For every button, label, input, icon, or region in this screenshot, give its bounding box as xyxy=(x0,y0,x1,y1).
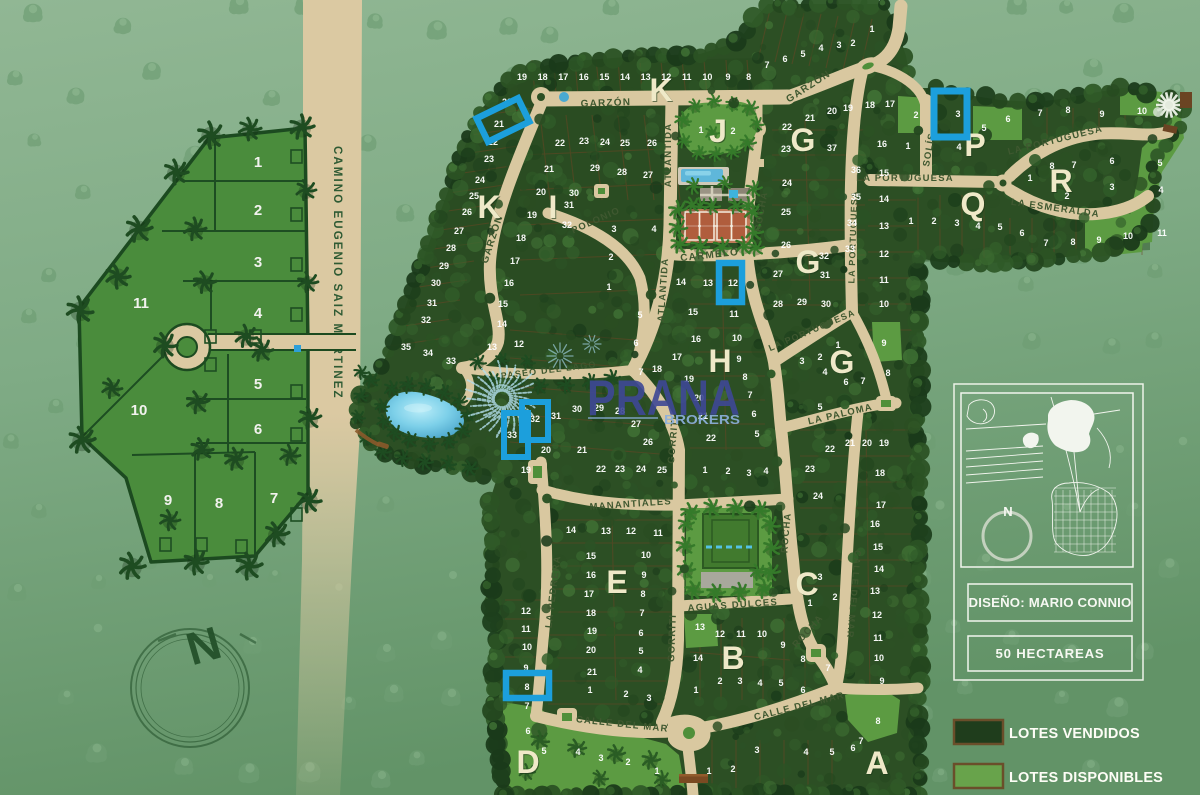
svg-text:32: 32 xyxy=(421,315,431,325)
svg-text:24: 24 xyxy=(475,175,485,185)
svg-text:14: 14 xyxy=(676,277,686,287)
svg-text:24: 24 xyxy=(813,491,823,501)
svg-text:4: 4 xyxy=(757,678,762,688)
svg-text:17: 17 xyxy=(510,256,520,266)
svg-text:9: 9 xyxy=(1099,109,1104,119)
svg-text:20: 20 xyxy=(827,106,837,116)
svg-text:3: 3 xyxy=(254,254,262,271)
svg-text:21: 21 xyxy=(577,445,587,455)
svg-text:5: 5 xyxy=(829,747,834,757)
svg-text:17: 17 xyxy=(584,589,594,599)
svg-text:8: 8 xyxy=(640,589,645,599)
svg-text:15: 15 xyxy=(688,307,698,317)
svg-text:7: 7 xyxy=(524,701,529,711)
svg-text:19: 19 xyxy=(527,210,537,220)
svg-text:8: 8 xyxy=(1070,237,1075,247)
svg-text:10: 10 xyxy=(874,653,884,663)
svg-text:34: 34 xyxy=(423,348,433,358)
svg-text:17: 17 xyxy=(876,500,886,510)
svg-text:19: 19 xyxy=(587,626,597,636)
svg-text:E: E xyxy=(606,564,627,600)
svg-text:28: 28 xyxy=(773,299,783,309)
svg-text:26: 26 xyxy=(781,240,791,250)
svg-text:3: 3 xyxy=(746,468,751,478)
svg-text:N: N xyxy=(1003,504,1012,519)
svg-text:22: 22 xyxy=(782,122,792,132)
svg-text:31: 31 xyxy=(820,270,830,280)
svg-text:6: 6 xyxy=(254,421,262,438)
svg-text:J: J xyxy=(709,113,727,149)
svg-text:Q: Q xyxy=(961,186,986,222)
svg-text:20: 20 xyxy=(862,438,872,448)
svg-text:4: 4 xyxy=(254,305,263,322)
svg-text:31: 31 xyxy=(564,200,574,210)
svg-text:8: 8 xyxy=(524,682,529,692)
svg-text:12: 12 xyxy=(728,278,738,288)
svg-text:6: 6 xyxy=(1109,156,1114,166)
svg-text:10: 10 xyxy=(641,550,651,560)
svg-text:5: 5 xyxy=(1157,158,1162,168)
svg-text:23: 23 xyxy=(805,464,815,474)
svg-text:K: K xyxy=(477,189,500,225)
svg-text:6: 6 xyxy=(850,743,855,753)
svg-text:B: B xyxy=(721,640,744,676)
svg-text:3: 3 xyxy=(646,693,651,703)
svg-text:2: 2 xyxy=(623,689,628,699)
svg-text:26: 26 xyxy=(462,207,472,217)
svg-text:12: 12 xyxy=(715,629,725,639)
svg-text:15: 15 xyxy=(879,168,889,178)
svg-text:1: 1 xyxy=(654,766,659,776)
svg-text:15: 15 xyxy=(498,299,508,309)
svg-text:7: 7 xyxy=(764,60,769,70)
svg-text:9: 9 xyxy=(780,640,785,650)
svg-text:36: 36 xyxy=(851,165,861,175)
svg-text:32: 32 xyxy=(562,220,572,230)
svg-text:I: I xyxy=(549,189,558,225)
svg-text:19: 19 xyxy=(521,465,531,475)
svg-text:7: 7 xyxy=(1071,160,1076,170)
svg-text:22: 22 xyxy=(825,444,835,454)
svg-text:3: 3 xyxy=(754,745,759,755)
svg-text:12: 12 xyxy=(626,526,636,536)
svg-text:24: 24 xyxy=(782,178,792,188)
svg-text:10: 10 xyxy=(131,402,148,419)
svg-text:13: 13 xyxy=(695,622,705,632)
svg-text:12: 12 xyxy=(521,606,531,616)
svg-text:25: 25 xyxy=(469,191,479,201)
svg-text:27: 27 xyxy=(454,226,464,236)
svg-text:32: 32 xyxy=(819,251,829,261)
svg-text:20: 20 xyxy=(536,187,546,197)
svg-text:7: 7 xyxy=(858,736,863,746)
svg-text:6: 6 xyxy=(1019,228,1024,238)
svg-text:30: 30 xyxy=(431,278,441,288)
svg-text:13: 13 xyxy=(870,586,880,596)
svg-text:7: 7 xyxy=(747,390,752,400)
svg-text:5: 5 xyxy=(254,376,262,393)
svg-text:17: 17 xyxy=(885,99,895,109)
svg-text:30: 30 xyxy=(572,404,582,414)
svg-text:3: 3 xyxy=(836,40,841,50)
svg-text:29: 29 xyxy=(797,297,807,307)
svg-text:11: 11 xyxy=(736,629,746,639)
svg-text:8: 8 xyxy=(1065,105,1070,115)
svg-text:18: 18 xyxy=(875,468,885,478)
svg-text:22: 22 xyxy=(596,464,606,474)
svg-text:21: 21 xyxy=(587,667,597,677)
svg-text:21: 21 xyxy=(544,164,554,174)
svg-text:3: 3 xyxy=(954,218,959,228)
svg-text:7: 7 xyxy=(1037,108,1042,118)
svg-text:10: 10 xyxy=(879,299,889,309)
svg-text:CAMINO EUGENIO SAIZ MARTINEZ: CAMINO EUGENIO SAIZ MARTINEZ xyxy=(331,146,343,400)
svg-text:10: 10 xyxy=(757,629,767,639)
svg-text:22: 22 xyxy=(555,138,565,148)
svg-text:4: 4 xyxy=(818,43,823,53)
svg-text:17: 17 xyxy=(672,352,682,362)
svg-text:35: 35 xyxy=(401,342,411,352)
svg-text:24: 24 xyxy=(636,464,646,474)
svg-text:C: C xyxy=(795,566,818,602)
svg-text:11: 11 xyxy=(879,275,889,285)
svg-text:D: D xyxy=(516,744,539,780)
svg-text:9: 9 xyxy=(1096,235,1101,245)
svg-text:22: 22 xyxy=(706,433,716,443)
svg-text:BROKERS: BROKERS xyxy=(664,413,740,427)
svg-text:19: 19 xyxy=(843,103,853,113)
svg-text:1: 1 xyxy=(807,598,812,608)
svg-text:18: 18 xyxy=(538,72,548,82)
svg-text:1: 1 xyxy=(908,216,913,226)
svg-text:13: 13 xyxy=(601,526,611,536)
svg-text:2: 2 xyxy=(730,126,735,136)
svg-text:5: 5 xyxy=(541,746,546,756)
svg-text:28: 28 xyxy=(617,167,627,177)
svg-text:11: 11 xyxy=(682,72,692,82)
svg-text:21: 21 xyxy=(805,113,815,123)
svg-text:5: 5 xyxy=(981,123,986,133)
svg-text:13: 13 xyxy=(641,72,651,82)
svg-text:26: 26 xyxy=(643,437,653,447)
svg-text:37: 37 xyxy=(827,143,837,153)
svg-text:4: 4 xyxy=(1158,185,1163,195)
svg-text:14: 14 xyxy=(566,525,576,535)
svg-text:DISEÑO: MARIO CONNIO: DISEÑO: MARIO CONNIO xyxy=(969,595,1132,610)
svg-text:23: 23 xyxy=(781,144,791,154)
svg-text:6: 6 xyxy=(1005,114,1010,124)
svg-text:3: 3 xyxy=(737,676,742,686)
svg-text:5: 5 xyxy=(754,429,759,439)
svg-text:7: 7 xyxy=(1043,238,1048,248)
svg-text:3: 3 xyxy=(598,753,603,763)
svg-text:11: 11 xyxy=(133,295,149,312)
svg-text:12: 12 xyxy=(872,610,882,620)
svg-text:A: A xyxy=(865,745,888,781)
svg-text:16: 16 xyxy=(579,72,589,82)
svg-text:25: 25 xyxy=(657,465,667,475)
svg-text:25: 25 xyxy=(620,138,630,148)
svg-text:8: 8 xyxy=(742,372,747,382)
svg-text:31: 31 xyxy=(427,298,437,308)
svg-text:1: 1 xyxy=(254,154,262,171)
svg-text:11: 11 xyxy=(521,624,531,634)
svg-text:1: 1 xyxy=(702,465,707,475)
svg-text:7: 7 xyxy=(860,376,865,386)
svg-text:2: 2 xyxy=(608,252,613,262)
svg-text:9: 9 xyxy=(881,338,886,348)
svg-text:10: 10 xyxy=(1137,106,1147,116)
svg-text:29: 29 xyxy=(590,163,600,173)
svg-text:2: 2 xyxy=(913,110,918,120)
svg-text:5: 5 xyxy=(800,49,805,59)
svg-text:11: 11 xyxy=(873,633,883,643)
svg-text:12: 12 xyxy=(514,339,524,349)
svg-text:8: 8 xyxy=(800,654,805,664)
svg-text:1: 1 xyxy=(869,24,874,34)
svg-text:23: 23 xyxy=(615,464,625,474)
svg-text:9: 9 xyxy=(879,676,884,686)
svg-text:5: 5 xyxy=(638,646,643,656)
svg-text:26: 26 xyxy=(647,138,657,148)
svg-text:13: 13 xyxy=(879,221,889,231)
svg-text:6: 6 xyxy=(751,409,756,419)
svg-text:11: 11 xyxy=(1157,228,1167,238)
svg-text:23: 23 xyxy=(484,154,494,164)
svg-text:GORRITI: GORRITI xyxy=(666,614,679,662)
svg-text:2: 2 xyxy=(931,216,936,226)
svg-text:2: 2 xyxy=(832,592,837,602)
svg-text:20: 20 xyxy=(541,445,551,455)
svg-text:18: 18 xyxy=(516,233,526,243)
svg-text:33: 33 xyxy=(845,244,855,254)
svg-text:10: 10 xyxy=(732,333,742,343)
svg-text:1: 1 xyxy=(905,141,910,151)
svg-text:15: 15 xyxy=(599,72,609,82)
svg-text:1: 1 xyxy=(698,125,703,135)
svg-text:16: 16 xyxy=(870,519,880,529)
svg-text:4: 4 xyxy=(803,747,808,757)
svg-text:24: 24 xyxy=(600,137,610,147)
svg-text:4: 4 xyxy=(763,466,768,476)
svg-text:LOTES DISPONIBLES: LOTES DISPONIBLES xyxy=(1009,770,1163,786)
svg-text:14: 14 xyxy=(620,72,630,82)
svg-text:2: 2 xyxy=(730,764,735,774)
svg-text:4: 4 xyxy=(956,142,961,152)
svg-text:7: 7 xyxy=(825,663,830,673)
svg-text:4: 4 xyxy=(637,665,642,675)
svg-text:2: 2 xyxy=(725,466,730,476)
svg-text:ATLANTIDA: ATLANTIDA xyxy=(663,123,674,187)
svg-text:16: 16 xyxy=(504,278,514,288)
svg-text:9: 9 xyxy=(725,72,730,82)
svg-text:16: 16 xyxy=(877,139,887,149)
svg-text:33: 33 xyxy=(446,356,456,366)
svg-text:50 HECTAREAS: 50 HECTAREAS xyxy=(995,646,1104,661)
svg-text:7: 7 xyxy=(270,490,278,507)
svg-text:6: 6 xyxy=(633,338,638,348)
svg-text:5: 5 xyxy=(637,310,642,320)
svg-text:13: 13 xyxy=(703,278,713,288)
svg-text:2: 2 xyxy=(817,352,822,362)
svg-text:30: 30 xyxy=(569,188,579,198)
svg-text:13: 13 xyxy=(487,342,497,352)
svg-text:8: 8 xyxy=(215,495,223,512)
svg-text:10: 10 xyxy=(702,72,712,82)
svg-text:5: 5 xyxy=(997,222,1002,232)
svg-text:3: 3 xyxy=(955,109,960,119)
svg-text:21: 21 xyxy=(494,119,504,129)
svg-text:2: 2 xyxy=(254,202,262,219)
svg-text:14: 14 xyxy=(693,653,703,663)
svg-text:18: 18 xyxy=(586,608,596,618)
svg-text:4: 4 xyxy=(651,224,656,234)
svg-text:6: 6 xyxy=(800,685,805,695)
svg-text:2: 2 xyxy=(625,757,630,767)
svg-text:16: 16 xyxy=(586,570,596,580)
svg-text:8: 8 xyxy=(875,716,880,726)
svg-text:8: 8 xyxy=(746,72,751,82)
svg-text:LOTES VENDIDOS: LOTES VENDIDOS xyxy=(1009,726,1140,742)
svg-text:6: 6 xyxy=(638,628,643,638)
svg-text:15: 15 xyxy=(873,542,883,552)
svg-text:31: 31 xyxy=(551,411,561,421)
svg-text:2: 2 xyxy=(850,38,855,48)
svg-text:6: 6 xyxy=(782,54,787,64)
svg-text:19: 19 xyxy=(879,438,889,448)
svg-text:33: 33 xyxy=(507,430,517,440)
svg-text:25: 25 xyxy=(781,207,791,217)
svg-text:1: 1 xyxy=(606,282,611,292)
svg-text:19: 19 xyxy=(517,72,527,82)
svg-text:G: G xyxy=(791,122,816,158)
svg-text:30: 30 xyxy=(821,299,831,309)
svg-text:10: 10 xyxy=(522,642,532,652)
svg-text:G: G xyxy=(796,244,821,280)
svg-text:3: 3 xyxy=(817,572,822,582)
svg-text:14: 14 xyxy=(874,564,884,574)
svg-text:23: 23 xyxy=(579,136,589,146)
svg-text:11: 11 xyxy=(653,528,663,538)
svg-text:14: 14 xyxy=(497,319,507,329)
svg-text:1: 1 xyxy=(835,340,840,350)
svg-text:9: 9 xyxy=(641,570,646,580)
svg-text:G: G xyxy=(830,344,855,380)
svg-text:32: 32 xyxy=(530,414,540,424)
svg-text:9: 9 xyxy=(736,354,741,364)
svg-text:4: 4 xyxy=(575,747,580,757)
svg-text:LA PORTUGUESA: LA PORTUGUESA xyxy=(856,173,954,184)
svg-text:6: 6 xyxy=(843,377,848,387)
svg-text:10: 10 xyxy=(1123,231,1133,241)
svg-text:4: 4 xyxy=(822,367,827,377)
svg-text:20: 20 xyxy=(586,645,596,655)
svg-text:18: 18 xyxy=(865,100,875,110)
svg-text:1: 1 xyxy=(1027,173,1032,183)
svg-text:2: 2 xyxy=(717,676,722,686)
svg-text:35: 35 xyxy=(851,192,861,202)
svg-text:4: 4 xyxy=(975,221,980,231)
svg-text:17: 17 xyxy=(558,72,568,82)
svg-text:15: 15 xyxy=(586,551,596,561)
svg-text:14: 14 xyxy=(879,194,889,204)
svg-text:2: 2 xyxy=(1064,191,1069,201)
svg-text:9: 9 xyxy=(164,492,172,509)
svg-text:8: 8 xyxy=(885,368,890,378)
svg-text:5: 5 xyxy=(817,402,822,412)
svg-text:6: 6 xyxy=(525,726,530,736)
svg-text:1: 1 xyxy=(587,685,592,695)
svg-text:1: 1 xyxy=(693,685,698,695)
svg-text:28: 28 xyxy=(446,243,456,253)
svg-text:27: 27 xyxy=(773,269,783,279)
svg-text:3: 3 xyxy=(611,224,616,234)
svg-text:1: 1 xyxy=(706,766,711,776)
svg-text:16: 16 xyxy=(691,334,701,344)
svg-text:12: 12 xyxy=(661,72,671,82)
svg-text:3: 3 xyxy=(799,356,804,366)
svg-text:8: 8 xyxy=(1049,161,1054,171)
svg-text:21: 21 xyxy=(845,438,855,448)
svg-text:29: 29 xyxy=(439,261,449,271)
svg-text:27: 27 xyxy=(643,170,653,180)
svg-text:11: 11 xyxy=(729,309,739,319)
svg-text:12: 12 xyxy=(879,249,889,259)
svg-text:34: 34 xyxy=(847,218,857,228)
svg-text:3: 3 xyxy=(1109,182,1114,192)
svg-text:5: 5 xyxy=(778,678,783,688)
svg-text:7: 7 xyxy=(639,608,644,618)
